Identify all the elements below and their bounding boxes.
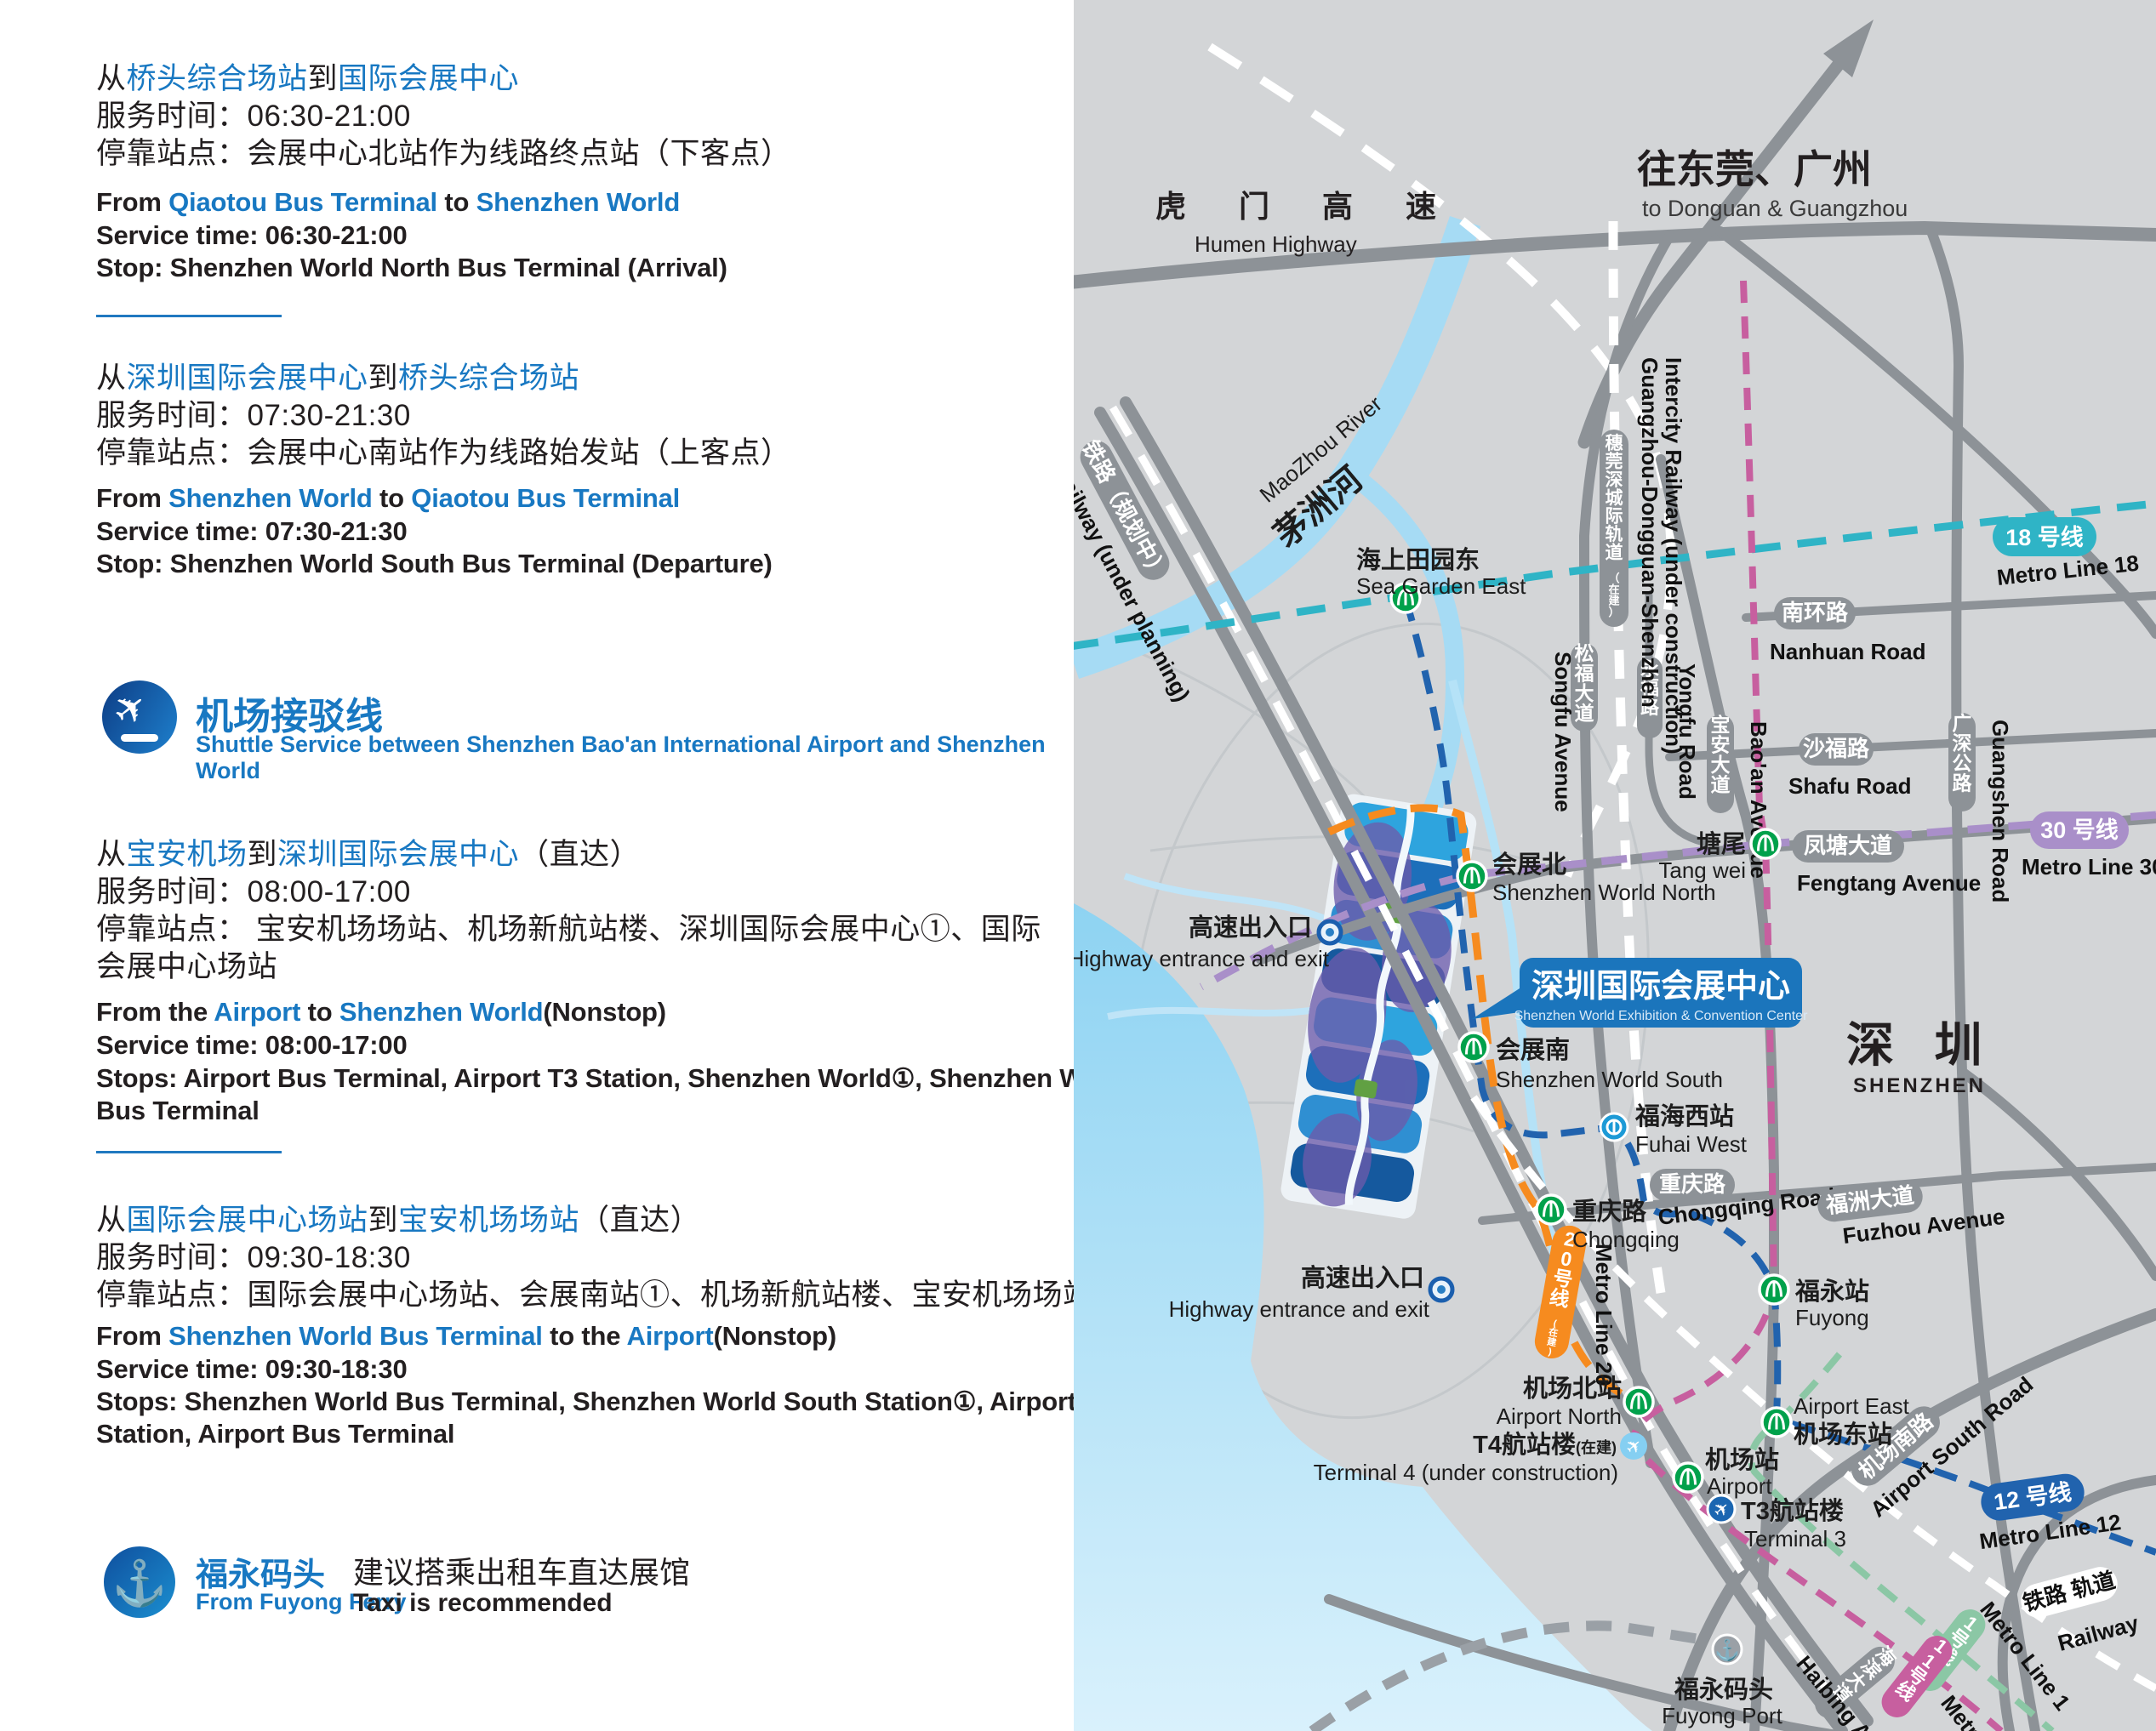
shenzhen-world-south-icon: [1459, 1033, 1488, 1062]
highway-entrance-icon-1: [1319, 921, 1341, 943]
airport-station-icon: [1674, 1463, 1703, 1492]
svg-text:深圳国际会展中心: 深圳国际会展中心: [1531, 969, 1790, 1005]
route2-stop-en: Stop: Shenzhen World South Bus Terminal …: [96, 549, 773, 579]
svg-text:穗莞深城际轨道: 穗莞深城际轨道: [1606, 433, 1623, 563]
svg-text:重庆路: 重庆路: [1572, 1198, 1647, 1226]
svg-text:机场北站: 机场北站: [1523, 1375, 1622, 1403]
route1-stops-zh: 停靠站点：会展中心北站作为线路终点站（下客点）: [96, 129, 791, 173]
svg-text:松福大道: 松福大道: [1574, 642, 1594, 724]
svg-text:30 号线: 30 号线: [2040, 817, 2119, 843]
svg-text:宝安大道: 宝安大道: [1711, 714, 1731, 795]
route4-stops-en-1: Stops: Shenzhen World Bus Terminal, Shen…: [96, 1387, 1114, 1417]
route4-title-en: From Shenzhen World Bus Terminal to the …: [96, 1321, 836, 1352]
svg-text:Fengtang Avenue: Fengtang Avenue: [1797, 870, 1981, 896]
svg-text:Fuyong: Fuyong: [1795, 1305, 1869, 1330]
svg-text:Shenzhen World Exhibition & Co: Shenzhen World Exhibition & Convention C…: [1514, 1009, 1808, 1023]
route2-time-en: Service time: 07:30-21:30: [96, 516, 408, 547]
svg-text:Shafu Road: Shafu Road: [1788, 773, 1911, 799]
svg-text:Metro Line 20: Metro Line 20: [1591, 1244, 1617, 1387]
svg-text:福永码头: 福永码头: [1674, 1676, 1773, 1704]
route3-title-en: From the Airport to Shenzhen World(Nonst…: [96, 997, 666, 1028]
airport-shuttle-icon: ✈: [102, 680, 177, 754]
airport-east-icon: [1762, 1408, 1791, 1437]
route4-stops-en-2: Station, Airport Bus Terminal: [96, 1419, 454, 1449]
divider: [96, 1151, 282, 1153]
divider: [96, 315, 282, 317]
svg-text:Terminal 4 (under construction: Terminal 4 (under construction): [1314, 1460, 1618, 1485]
convention-center-label: 深圳国际会展中心 Shenzhen World Exhibition & Con…: [1472, 958, 1808, 1028]
svg-text:福海西站: 福海西站: [1634, 1102, 1734, 1130]
svg-text:Airport East: Airport East: [1794, 1393, 1910, 1419]
svg-text:高速出入口: 高速出入口: [1189, 914, 1312, 942]
route2-title-en: From Shenzhen World to Qiaotou Bus Termi…: [96, 483, 680, 514]
humen-label-en: Humen Highway: [1195, 231, 1357, 257]
runway-bar: [121, 734, 158, 742]
svg-text:凤塘大道: 凤塘大道: [1804, 833, 1892, 858]
terminal3-icon: ✈: [1708, 1495, 1735, 1523]
airport-north-icon: [1624, 1387, 1653, 1416]
svg-text:（在建）: （在建）: [1608, 572, 1619, 618]
info-panel: 从桥头综合场站到国际会展中心 服务时间：06:30-21:00 停靠站点：会展中…: [0, 0, 1074, 1731]
svg-text:Highway entrance and exit: Highway entrance and exit: [1074, 946, 1330, 971]
svg-text:Fuhai West: Fuhai West: [1635, 1131, 1748, 1157]
svg-text:T3航站楼: T3航站楼: [1741, 1496, 1844, 1525]
svg-text:⚓: ⚓: [1714, 1638, 1740, 1662]
svg-text:Sea Garden East: Sea Garden East: [1356, 573, 1526, 599]
svg-text:Terminal 3: Terminal 3: [1744, 1526, 1846, 1552]
ferry-note-zh: 建议搭乘出租车直达展馆: [353, 1548, 690, 1592]
svg-text:Guangzhou-Dongguan-Shenzhen: Guangzhou-Dongguan-Shenzhen: [1637, 357, 1663, 708]
ferry-note-en: Taxi is recommended: [353, 1589, 613, 1618]
svg-text:广深公路: 广深公路: [1953, 712, 1973, 794]
dest-label-en: to Donguan & Guangzhou: [1642, 196, 1908, 221]
transit-map: 往东莞、广州 to Donguan & Guangzhou 虎 门 高 速 Hu…: [1074, 0, 2156, 1731]
svg-text:Metro Line 30: Metro Line 30: [2022, 854, 2156, 880]
svg-text:Nanhuan Road: Nanhuan Road: [1770, 639, 1925, 664]
fuhai-west-icon: [1600, 1113, 1628, 1141]
route3-time-en: Service time: 08:00-17:00: [96, 1030, 408, 1061]
dest-label-zh: 往东莞、广州: [1637, 147, 1872, 191]
highway-entrance-icon-2: [1430, 1278, 1452, 1301]
svg-text:Airport North: Airport North: [1497, 1404, 1622, 1429]
route1-title-en: From Qiaotou Bus Terminal to Shenzhen Wo…: [96, 187, 680, 218]
svg-text:Fuyong Port: Fuyong Port: [1662, 1703, 1782, 1728]
airport-shuttle-subtitle: Shuttle Service between Shenzhen Bao'an …: [196, 732, 1074, 784]
svg-text:Shenzhen World South: Shenzhen World South: [1496, 1067, 1723, 1092]
svg-text:机场东站: 机场东站: [1794, 1420, 1892, 1449]
route3-stops-zh-2: 会展中心场站: [96, 942, 277, 986]
svg-text:沙福路: 沙福路: [1803, 736, 1870, 761]
route1-stop-en: Stop: Shenzhen World North Bus Terminal …: [96, 253, 727, 283]
svg-text:高速出入口: 高速出入口: [1301, 1264, 1424, 1292]
tangwei-icon: [1751, 829, 1780, 858]
route1-time-en: Service time: 06:30-21:00: [96, 220, 408, 251]
shenzhen-world-north-icon: [1457, 862, 1486, 891]
route4-time-en: Service time: 09:30-18:30: [96, 1354, 408, 1385]
trees: [1354, 1079, 1378, 1099]
city-label-zh: 深 圳: [1846, 1018, 1996, 1072]
ferry-title: 福永码头: [196, 1548, 325, 1595]
svg-text:会展南: 会展南: [1496, 1036, 1570, 1064]
chongqing-icon: [1537, 1195, 1566, 1224]
svg-text:机场站: 机场站: [1705, 1446, 1779, 1474]
city-label-en: SHENZHEN: [1853, 1074, 1986, 1097]
svg-text:福永站: 福永站: [1794, 1278, 1869, 1306]
route4-stops-zh: 停靠站点：国际会展中心场站、会展南站①、机场新航站楼、宝安机场场站: [96, 1271, 1093, 1314]
svg-text:Intercity Railway (under const: Intercity Railway (under construction): [1661, 357, 1686, 754]
svg-text:重庆路: 重庆路: [1659, 1171, 1726, 1197]
svg-text:Shenzhen World North: Shenzhen World North: [1492, 880, 1716, 905]
plane-icon: ✈: [103, 680, 157, 737]
route3-stops-en-2: Bus Terminal: [96, 1096, 260, 1126]
svg-text:南环路: 南环路: [1782, 600, 1849, 625]
route2-stops-zh: 停靠站点：会展中心南站作为线路始发站（上客点）: [96, 429, 791, 472]
terminal4-icon: ✈: [1620, 1432, 1647, 1460]
svg-text:塘尾: 塘尾: [1697, 829, 1746, 858]
svg-text:Chongqing: Chongqing: [1572, 1227, 1680, 1252]
fuyong-icon: [1760, 1275, 1788, 1304]
svg-text:Highway entrance and exit: Highway entrance and exit: [1169, 1296, 1430, 1322]
humen-label-zh: 虎 门 高 速: [1155, 189, 1458, 224]
fuyong-port-icon: ⚓: [1713, 1635, 1742, 1664]
svg-text:Songfu Avenue: Songfu Avenue: [1550, 652, 1576, 812]
svg-text:18 号线: 18 号线: [2005, 525, 2084, 550]
svg-text:Tang wei: Tang wei: [1658, 857, 1746, 883]
route3-stops-en-1: Stops: Airport Bus Terminal, Airport T3 …: [96, 1063, 1133, 1094]
svg-text:海上田园东: 海上田园东: [1356, 545, 1480, 574]
svg-text:会展北: 会展北: [1492, 851, 1566, 879]
ferry-anchor-icon: ⚓: [104, 1546, 175, 1618]
shuttle-guide-page: 从桥头综合场站到国际会展中心 服务时间：06:30-21:00 停靠站点：会展中…: [0, 0, 2156, 1731]
svg-text:Guangshen Road: Guangshen Road: [1988, 720, 2013, 903]
